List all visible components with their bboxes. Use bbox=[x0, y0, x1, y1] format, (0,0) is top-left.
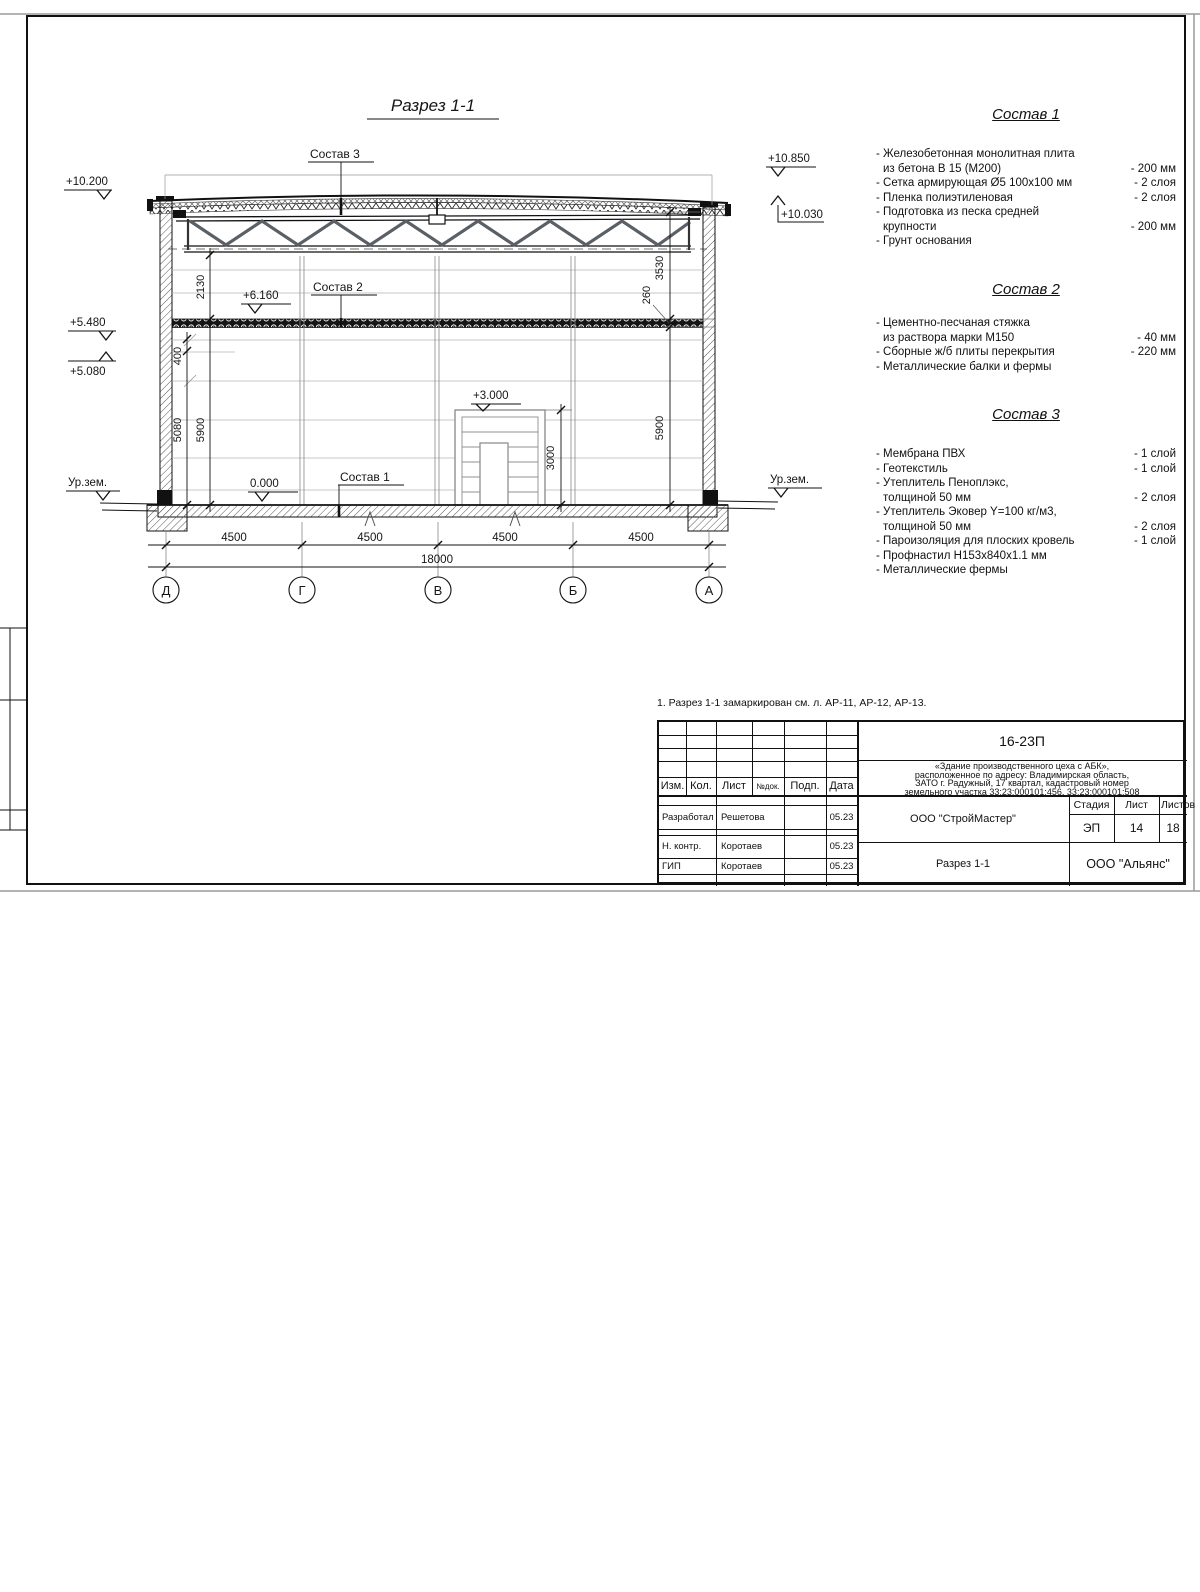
row-date: 05.23 bbox=[826, 835, 857, 858]
layer-label-2: Состав 2 bbox=[313, 280, 363, 294]
axis-d: Д bbox=[162, 583, 171, 598]
sheet-label: Лист bbox=[1114, 795, 1159, 814]
composition-item: - Мембрана ПВХ - 1 слой bbox=[876, 447, 1176, 462]
axis-v: В bbox=[434, 583, 443, 598]
designer-org: ООО "СтройМастер" bbox=[857, 795, 1069, 842]
composition-title: Состав 2 bbox=[876, 281, 1176, 298]
dim-400: 400 bbox=[172, 347, 184, 365]
row-role: Разработал bbox=[659, 805, 716, 829]
composition-item: - Подготовка из песка среднейкрупности -… bbox=[876, 205, 1176, 234]
title-block: Изм. Кол. Лист №док. Подп. Дата Разработ… bbox=[657, 720, 1185, 884]
composition-item: - Металлические фермы bbox=[876, 563, 1176, 578]
doc-title: Разрез 1-1 bbox=[857, 842, 1069, 886]
mark-5080: +5.080 bbox=[70, 366, 106, 378]
mark-ground-right: Ур.зем. bbox=[770, 474, 809, 486]
layer-label-3: Состав 3 bbox=[310, 147, 360, 161]
row-role: Н. контр. bbox=[659, 835, 716, 858]
dim-4500-2: 4500 bbox=[357, 532, 383, 544]
dim-5900-left: 5900 bbox=[195, 418, 207, 442]
composition-item: - Металлические балки и фермы bbox=[876, 360, 1176, 375]
row-date: 05.23 bbox=[826, 805, 857, 829]
sheets-label: Листов bbox=[1159, 795, 1187, 814]
composition-title: Состав 3 bbox=[876, 406, 1176, 423]
composition-item: - Грунт основания bbox=[876, 234, 1176, 249]
mark-6160: +6.160 bbox=[243, 290, 279, 302]
drawing-title: Разрез 1-1 bbox=[391, 96, 475, 115]
composition-title: Состав 1 bbox=[876, 106, 1176, 123]
dims-bottom: 4500 4500 4500 4500 18000 bbox=[148, 522, 726, 577]
layer-label-1: Состав 1 bbox=[340, 470, 390, 484]
row-date: 05.23 bbox=[826, 858, 857, 874]
composition-item: - Геотекстиль - 1 слой bbox=[876, 462, 1176, 477]
axis-a: А bbox=[705, 583, 714, 598]
mark-5480: +5.480 bbox=[70, 317, 106, 329]
project-object: «Здание производственного цеха с АБК», р… bbox=[857, 760, 1187, 795]
col-list: Лист bbox=[716, 777, 752, 795]
row-name: Коротаев bbox=[718, 858, 784, 874]
mark-ground-left: Ур.зем. bbox=[68, 477, 107, 489]
composition-item: - Сетка армирующая Ø5 100х100 мм - 2 сло… bbox=[876, 176, 1176, 191]
mark-zero: 0.000 bbox=[250, 478, 279, 490]
customer-org: ООО "Альянс" bbox=[1069, 842, 1187, 886]
mark-10030: +10.030 bbox=[781, 209, 823, 221]
row-name: Решетова bbox=[718, 805, 784, 829]
dim-4500-3: 4500 bbox=[492, 532, 518, 544]
sheets-total: 18 bbox=[1159, 814, 1187, 842]
dim-5080: 5080 bbox=[172, 418, 184, 442]
drawing-sheet: { "sheet": { "title": "Разрез 1-1", "not… bbox=[0, 0, 1200, 900]
roof-assembly bbox=[147, 195, 731, 216]
composition-item: - Профнастил Н153х840х1.1 мм bbox=[876, 549, 1176, 564]
col-podp: Подп. bbox=[784, 777, 826, 795]
composition-list-3: Состав 3 - Мембрана ПВХ - 1 слой - Геоте… bbox=[876, 406, 1176, 578]
composition-item: - Пароизоляция для плоских кровель - 1 с… bbox=[876, 534, 1176, 549]
dim-3530: 3530 bbox=[654, 256, 666, 280]
dim-5900-right: 5900 bbox=[654, 416, 666, 440]
composition-item: - Сборные ж/б плиты перекрытия - 220 мм bbox=[876, 345, 1176, 360]
composition-item: - Железобетонная монолитная плитаиз бето… bbox=[876, 147, 1176, 176]
axis-bubbles: Д Г В Б А bbox=[153, 577, 722, 603]
mark-10200: +10.200 bbox=[66, 176, 108, 188]
dim-260: 260 bbox=[641, 286, 653, 304]
axis-g: Г bbox=[298, 583, 305, 598]
sheet-number: 14 bbox=[1114, 814, 1159, 842]
stage-value: ЭП bbox=[1069, 814, 1114, 842]
dim-18000: 18000 bbox=[421, 554, 453, 566]
project-code: 16-23П bbox=[857, 722, 1187, 760]
dim-2130: 2130 bbox=[195, 275, 207, 299]
dims-left: 400 5080 2130 5900 bbox=[172, 248, 214, 512]
composition-item: - Утеплитель Пеноплэкс,толщиной 50 мм - … bbox=[876, 476, 1176, 505]
dim-4500-1: 4500 bbox=[221, 532, 247, 544]
composition-list-1: Состав 1 - Железобетонная монолитная пли… bbox=[876, 106, 1176, 249]
stage-label: Стадия bbox=[1069, 795, 1114, 814]
wicket-door bbox=[480, 443, 508, 505]
mark-10850: +10.850 bbox=[768, 153, 810, 165]
sheet-note: 1. Разрез 1-1 замаркирован см. л. АР-11,… bbox=[657, 697, 926, 709]
composition-item: - Цементно-песчаная стяжкаиз раствора ма… bbox=[876, 316, 1176, 345]
side-stamp bbox=[0, 628, 27, 830]
floor-slab-6160 bbox=[172, 319, 703, 328]
sectional-gate bbox=[455, 410, 545, 505]
row-name: Коротаев bbox=[718, 835, 784, 858]
col-data: Дата bbox=[826, 777, 857, 795]
dim-3000: 3000 bbox=[545, 446, 557, 470]
col-kol: Кол. bbox=[686, 777, 716, 795]
mark-3000: +3.000 bbox=[473, 390, 509, 402]
row-role: ГИП bbox=[659, 858, 716, 874]
col-ndoc: №док. bbox=[752, 777, 784, 795]
axis-b: Б bbox=[569, 583, 578, 598]
composition-list-2: Состав 2 - Цементно-песчаная стяжкаиз ра… bbox=[876, 281, 1176, 374]
composition-item: - Пленка полиэтиленовая - 2 слоя bbox=[876, 191, 1176, 206]
col-izm: Изм. bbox=[659, 777, 686, 795]
composition-item: - Утеплитель Эковер Y=100 кг/м3,толщиной… bbox=[876, 505, 1176, 534]
wall-panel-lines bbox=[172, 270, 703, 490]
dim-4500-4: 4500 bbox=[628, 532, 654, 544]
